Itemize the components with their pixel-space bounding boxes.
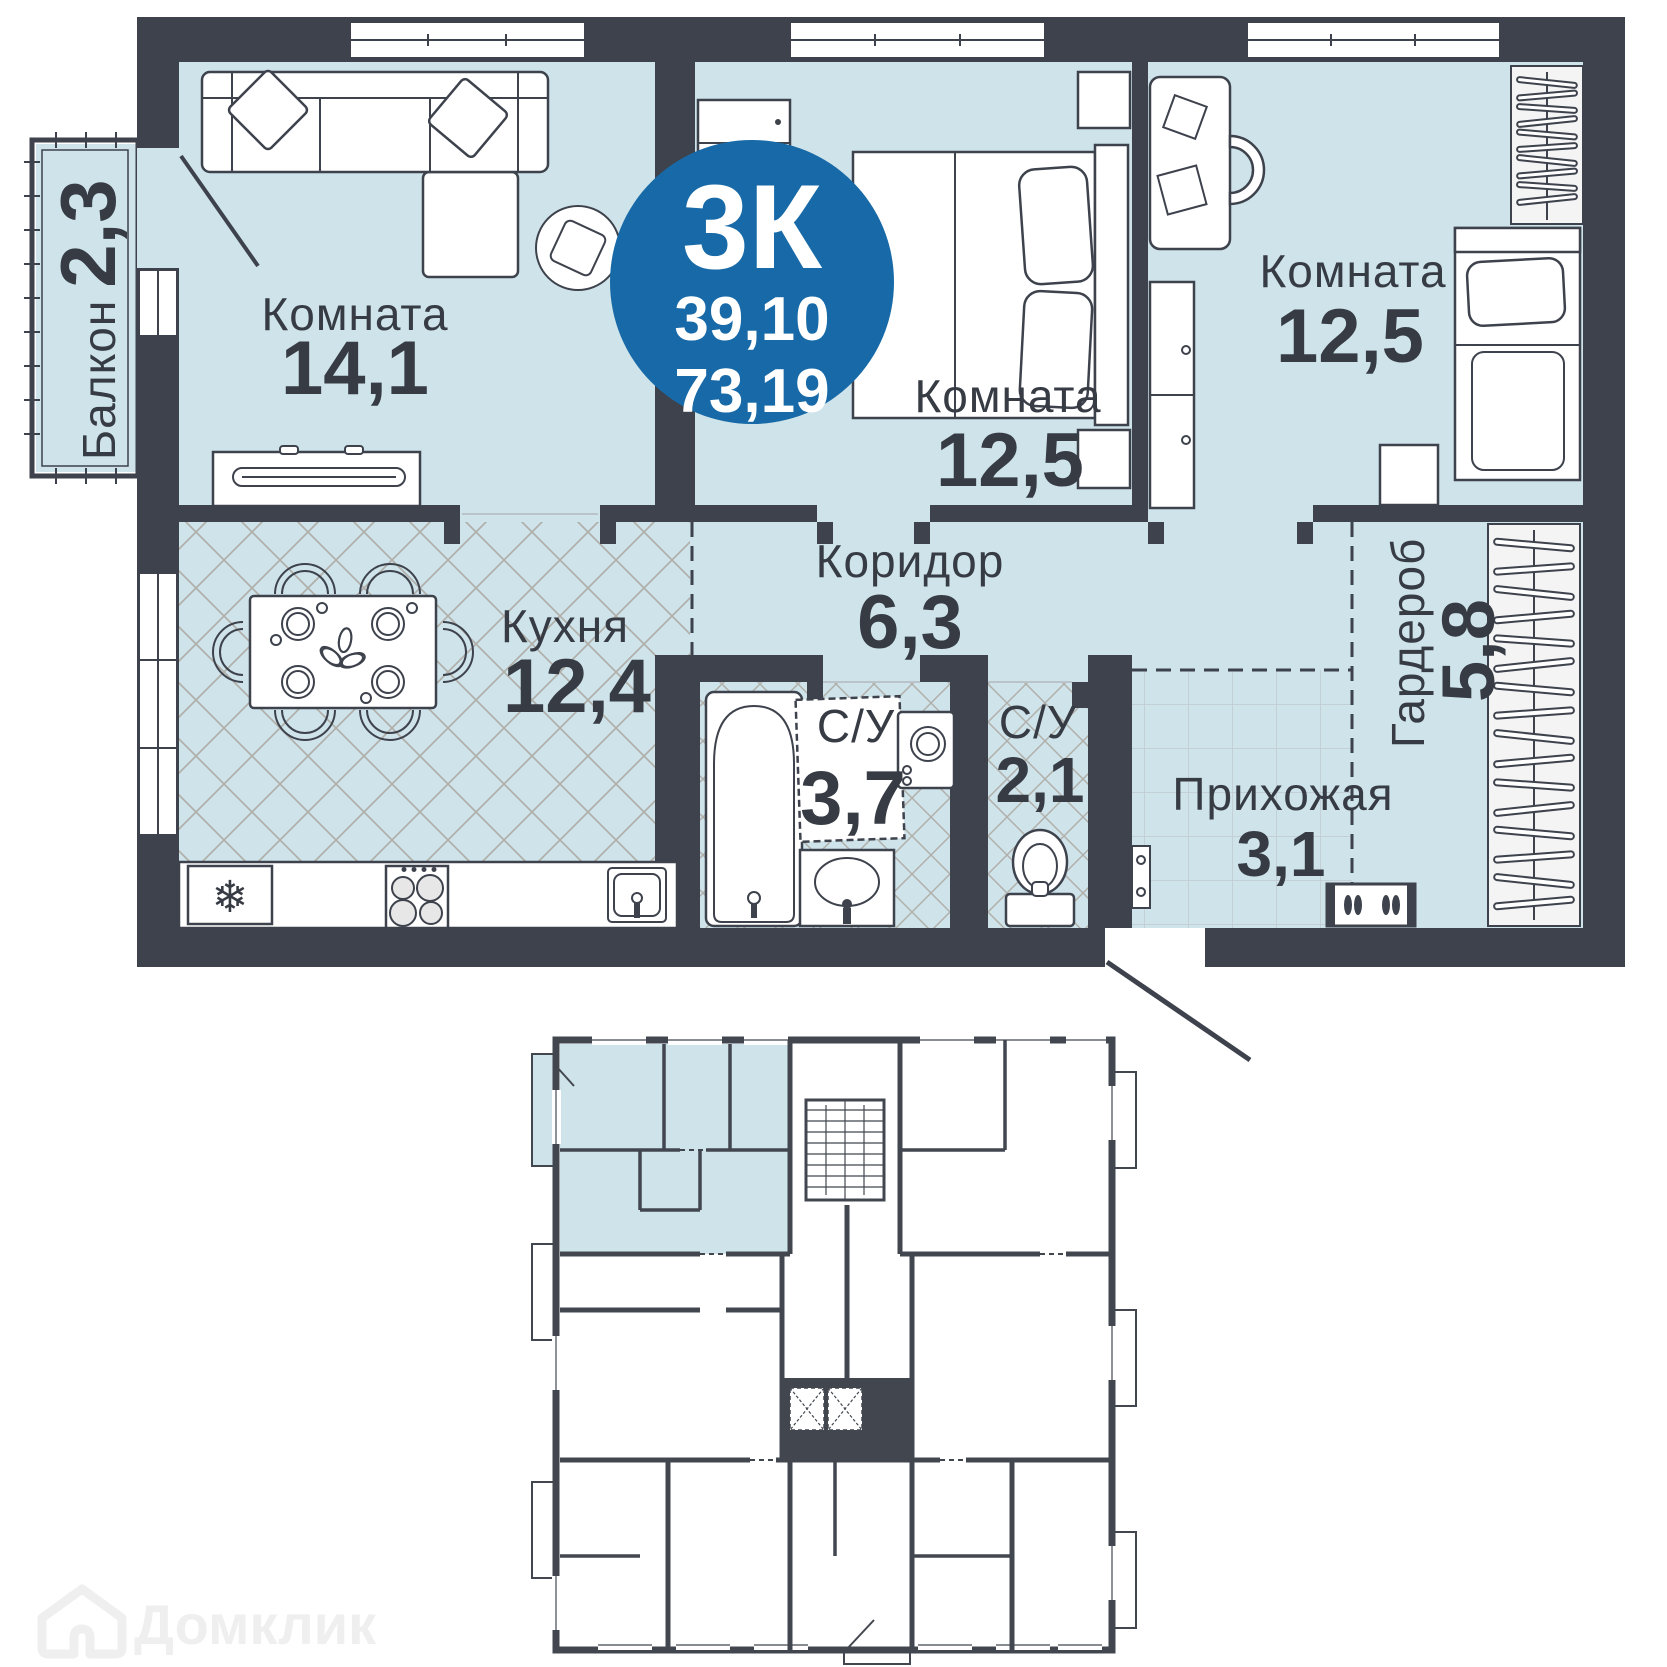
round-rug (536, 206, 620, 290)
mini-plan (532, 1036, 1136, 1664)
blanket (1472, 352, 1564, 470)
corridor-area: 6,3 (857, 580, 963, 665)
bedroom-right-label: Комната (1259, 245, 1446, 297)
entry-opening (1105, 928, 1205, 967)
hallway-area: 3,1 (1237, 818, 1326, 890)
window-bedroom-right (1247, 22, 1500, 58)
hallway-label: Прихожая (1172, 768, 1393, 820)
window-balcony-block (139, 270, 177, 336)
watermark: Домклик (42, 1589, 377, 1656)
mini-entry-door (846, 1620, 874, 1650)
clothes-rack-top (1511, 66, 1583, 224)
snowflake-icon: ❄ (212, 873, 249, 922)
bath-sink (800, 850, 894, 926)
pillow (1466, 258, 1565, 327)
bathtub (706, 692, 802, 926)
watermark-house-icon (42, 1589, 122, 1654)
single-bed (1455, 228, 1580, 480)
badge-type: 3К (682, 160, 823, 294)
tv-console (213, 446, 420, 506)
bedroom-mid-label: Комната (914, 370, 1101, 422)
toilet-label: С/У (999, 696, 1077, 748)
mini-stairs (806, 1100, 884, 1200)
living-area: 14,1 (281, 326, 429, 411)
side-table (1380, 445, 1438, 505)
kitchen-counter: ❄ (179, 862, 677, 928)
floorplan-svg: ❄ (0, 0, 1667, 1667)
kitchen-sink (608, 868, 666, 922)
toilet-area: 2,1 (996, 744, 1085, 816)
watermark-brand: Домклик (134, 1593, 377, 1656)
bedroom-right-area: 12,5 (1276, 294, 1424, 379)
window-living (350, 22, 585, 58)
badge-living-area: 39,10 (674, 285, 829, 354)
floorplan-page: ❄ (0, 0, 1667, 1667)
nightstand (1078, 430, 1130, 488)
washing-machine (898, 712, 954, 788)
stove (386, 866, 448, 928)
wardrobe-cabinet (1150, 282, 1194, 508)
window-bedroom-mid (790, 22, 1045, 58)
bathroom-area: 3,7 (800, 756, 906, 841)
mini-elevator-core (782, 1378, 914, 1462)
bathroom-label: С/У (817, 700, 895, 752)
balcony-name: Балкон (73, 300, 125, 460)
badge-total-area: 73,19 (674, 357, 829, 426)
bedroom-mid-area: 12,5 (936, 418, 1084, 503)
balcony-door-opening (137, 148, 179, 268)
kitchen-area: 12,4 (503, 644, 651, 729)
clothes-rack-wardrobe (1488, 524, 1580, 926)
nightstand (1078, 72, 1130, 128)
badge: 3К 39,10 73,19 (610, 140, 894, 426)
paper (1158, 166, 1207, 215)
wardrobe-area: 5,8 (1427, 599, 1510, 702)
desk (1150, 77, 1230, 249)
window-kitchen (139, 573, 177, 835)
pillow (1018, 166, 1094, 285)
shoe-rack (1327, 884, 1415, 926)
balcony-area: 2,3 (44, 179, 132, 287)
entry-door-swing (1107, 962, 1250, 1060)
coat-hooks (1132, 846, 1150, 908)
toilet (1006, 830, 1074, 926)
